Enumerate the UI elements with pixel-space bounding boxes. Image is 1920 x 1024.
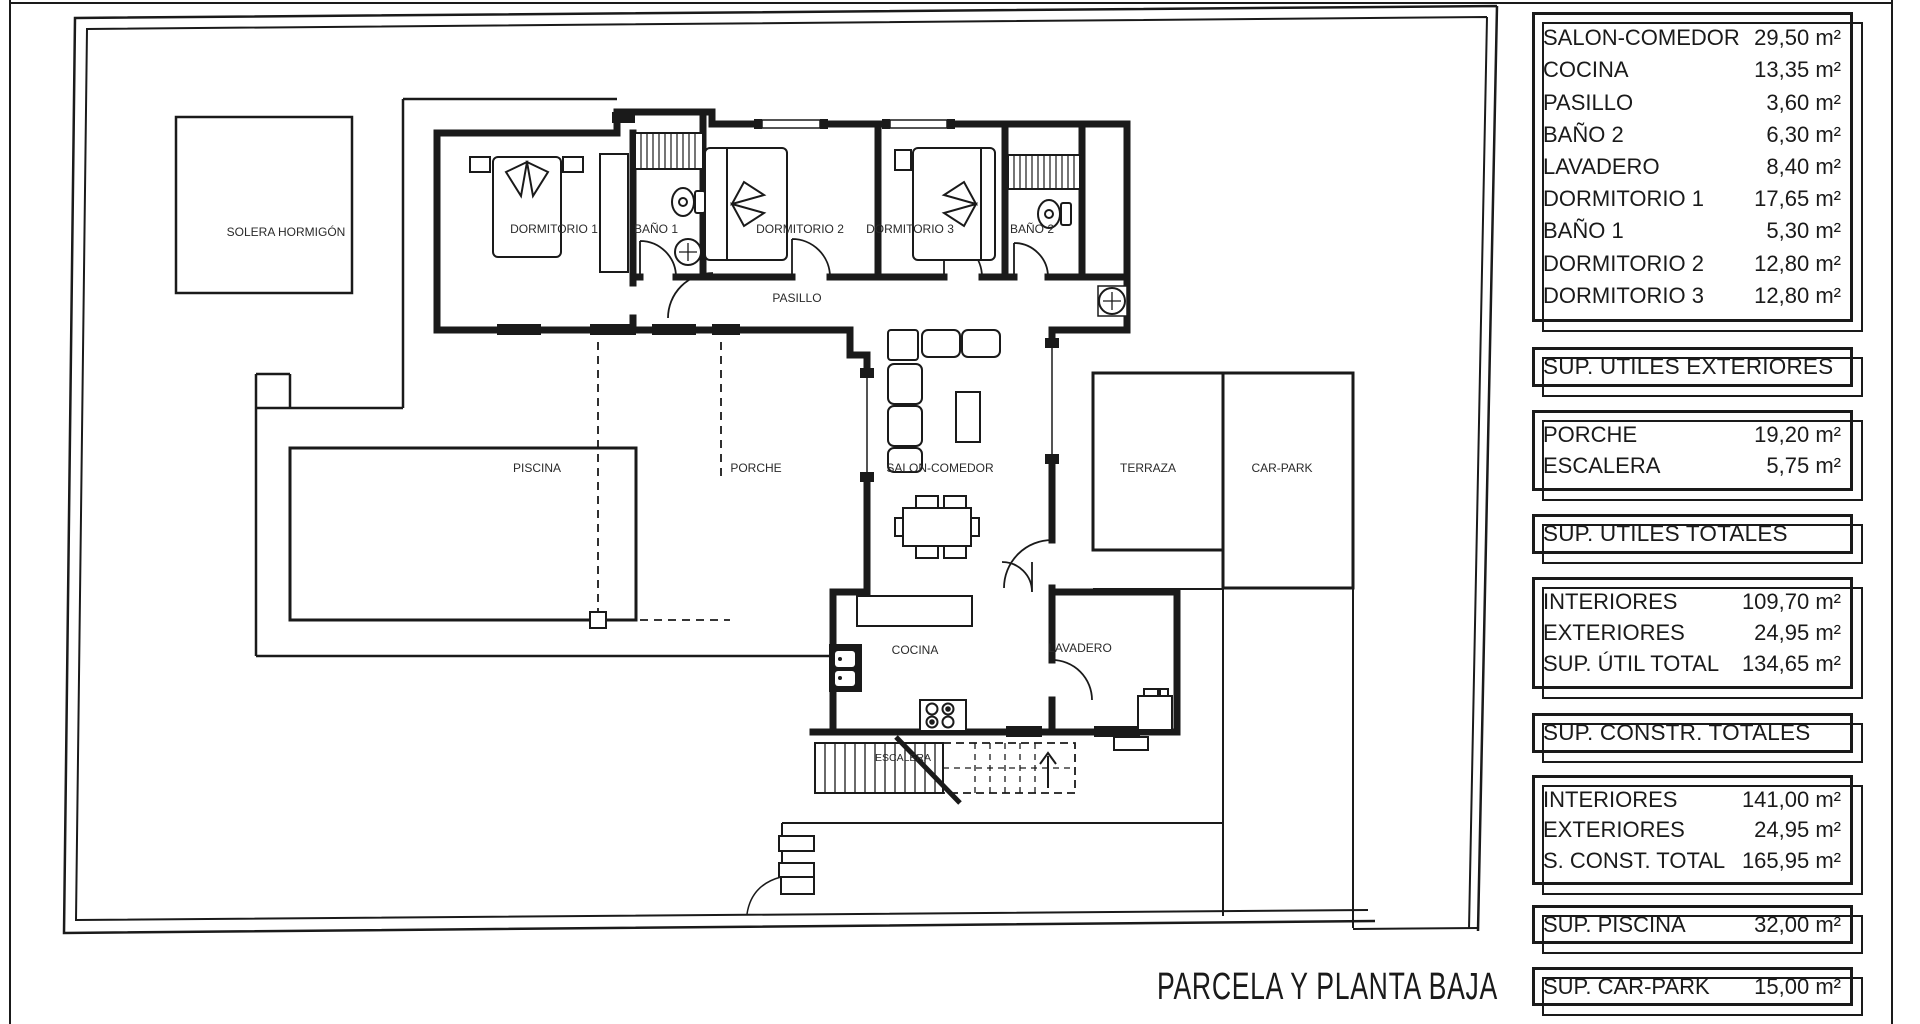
row-label: LAVADERO — [1543, 156, 1660, 178]
carpark-outline — [1223, 373, 1353, 588]
table-row: COCINA13,35 m² — [1543, 59, 1841, 81]
table-row: EXTERIORES24,95 m² — [1543, 819, 1841, 841]
label-bano2: BAÑO 2 — [1010, 222, 1054, 236]
panel-header-sup-utiles-exteriores: SUP. UTILES EXTERIORES — [1532, 347, 1853, 387]
row-label: EXTERIORES — [1543, 819, 1685, 841]
washing-machine — [1138, 689, 1172, 730]
row-value: 6,30 m² — [1766, 124, 1841, 146]
table-row: PASILLO3,60 m² — [1543, 92, 1841, 114]
row-label: INTERIORES — [1543, 789, 1677, 811]
kitchen-sink-unit — [829, 644, 862, 692]
panel-utiles-totales-table: INTERIORES109,70 m² EXTERIORES24,95 m² S… — [1532, 577, 1853, 689]
label-dormitorio1: DORMITORIO 1 — [510, 222, 598, 236]
row-label: BAÑO 2 — [1543, 124, 1624, 146]
row-value: 19,20 m² — [1754, 424, 1841, 446]
sink-bano1 — [675, 239, 701, 265]
plan-title: PARCELA Y PLANTA BAJA — [1157, 966, 1498, 1009]
row-label: INTERIORES — [1543, 591, 1677, 613]
panel-header-sup-constr-totales: SUP. CONSTR. TOTALES — [1532, 713, 1853, 753]
table-row: INTERIORES141,00 m² — [1543, 789, 1841, 811]
panel-header-text: SUP. CONSTR. TOTALES — [1543, 722, 1841, 745]
drawing-sheet: SOLERA HORMIGÓN DORMITORIO 1 BAÑO 1 DORM… — [0, 0, 1920, 1024]
shower-hatch-bano1 — [635, 133, 703, 169]
table-row: SUP. PISCINA32,00 m² — [1543, 914, 1841, 936]
row-value: 29,50 m² — [1754, 27, 1841, 49]
label-bano1: BAÑO 1 — [634, 222, 678, 236]
row-value: 109,70 m² — [1742, 591, 1841, 613]
bed-dormitorio1 — [470, 157, 583, 257]
panel-interior-areas-table: SALON-COMEDOR29,50 m² COCINA13,35 m² PAS… — [1532, 12, 1853, 322]
panel-sup-carpark: SUP. CAR-PARK15,00 m² — [1532, 967, 1853, 1006]
row-label: BAÑO 1 — [1543, 220, 1624, 242]
table-row: ESCALERA5,75 m² — [1543, 455, 1841, 477]
label-carpark: CAR-PARK — [1251, 461, 1312, 475]
table-row: S. CONST. TOTAL165,95 m² — [1543, 850, 1841, 872]
bed-dormitorio2 — [705, 148, 787, 260]
row-value: 12,80 m² — [1754, 285, 1841, 307]
kitchen-counter — [857, 596, 972, 626]
row-label: SUP. PISCINA — [1543, 914, 1686, 936]
panel-header-sup-utiles-totales: SUP. UTILES TOTALES — [1532, 514, 1853, 554]
label-escalera: ESCALERA — [875, 752, 931, 764]
row-label: EXTERIORES — [1543, 622, 1685, 644]
porch-edges — [598, 342, 730, 620]
label-piscina: PISCINA — [513, 461, 561, 475]
row-value: 24,95 m² — [1754, 819, 1841, 841]
table-row: INTERIORES109,70 m² — [1543, 591, 1841, 613]
label-salon: SALON-COMEDOR — [886, 461, 994, 475]
panel-exterior-areas-table: PORCHE19,20 m² ESCALERA5,75 m² — [1532, 410, 1853, 491]
row-value: 5,75 m² — [1766, 455, 1841, 477]
porch-column — [590, 612, 606, 628]
room-labels: SOLERA HORMIGÓN DORMITORIO 1 BAÑO 1 DORM… — [227, 222, 1313, 764]
dining-table — [895, 496, 979, 558]
label-dormitorio3: DORMITORIO 3 — [866, 222, 954, 236]
stairs-escalera — [815, 737, 1075, 803]
row-label: S. CONST. TOTAL — [1543, 850, 1725, 872]
row-label: PASILLO — [1543, 92, 1633, 114]
row-label: PORCHE — [1543, 424, 1637, 446]
row-value: 12,80 m² — [1754, 253, 1841, 275]
solera-hormigon-area — [176, 117, 352, 293]
table-row: BAÑO 26,30 m² — [1543, 124, 1841, 146]
table-row: SUP. ÚTIL TOTAL134,65 m² — [1543, 653, 1841, 675]
swimming-pool — [290, 448, 636, 620]
label-cocina: COCINA — [892, 643, 939, 657]
entry-steps — [747, 836, 814, 914]
row-value: 165,95 m² — [1742, 850, 1841, 872]
label-solera: SOLERA HORMIGÓN — [227, 224, 346, 239]
row-label: DORMITORIO 3 — [1543, 285, 1704, 307]
row-value: 5,30 m² — [1766, 220, 1841, 242]
row-value: 8,40 m² — [1766, 156, 1841, 178]
header-label: SUP. UTILES TOTALES — [1543, 523, 1788, 546]
row-label: SUP. CAR-PARK — [1543, 976, 1710, 998]
header-label: SUP. UTILES EXTERIORES — [1543, 356, 1833, 379]
label-dormitorio2: DORMITORIO 2 — [756, 222, 844, 236]
row-value: 13,35 m² — [1754, 59, 1841, 81]
table-row: BAÑO 15,30 m² — [1543, 220, 1841, 242]
row-label: SUP. ÚTIL TOTAL — [1543, 653, 1719, 675]
row-label: ESCALERA — [1543, 455, 1660, 477]
row-label: DORMITORIO 1 — [1543, 188, 1704, 210]
bed-dormitorio3 — [895, 148, 995, 260]
label-terraza: TERRAZA — [1120, 461, 1176, 475]
row-value: 32,00 m² — [1754, 914, 1841, 936]
table-row: DORMITORIO 312,80 m² — [1543, 285, 1841, 307]
row-value: 141,00 m² — [1742, 789, 1841, 811]
shower-hatch-bano2 — [1008, 155, 1080, 189]
lavadero-step — [1114, 737, 1148, 750]
stove — [920, 700, 966, 731]
table-row: SUP. CAR-PARK15,00 m² — [1543, 976, 1841, 998]
row-label: SALON-COMEDOR — [1543, 27, 1740, 49]
table-row: LAVADERO8,40 m² — [1543, 156, 1841, 178]
wardrobe-dormitorio1 — [600, 154, 628, 272]
row-value: 3,60 m² — [1766, 92, 1841, 114]
sink-corridor-niche — [1098, 286, 1127, 316]
row-value: 134,65 m² — [1742, 653, 1841, 675]
table-row: DORMITORIO 117,65 m² — [1543, 188, 1841, 210]
table-row: DORMITORIO 212,80 m² — [1543, 253, 1841, 275]
panel-constr-totales-table: INTERIORES141,00 m² EXTERIORES24,95 m² S… — [1532, 775, 1853, 885]
row-label: COCINA — [1543, 59, 1629, 81]
panel-header-text: SUP. UTILES TOTALES — [1543, 523, 1841, 546]
sofa-set — [888, 330, 1000, 472]
row-label: DORMITORIO 2 — [1543, 253, 1704, 275]
panel-sup-piscina: SUP. PISCINA32,00 m² — [1532, 905, 1853, 944]
toilet-bano1 — [672, 188, 705, 216]
label-lavadero: LAVADERO — [1048, 641, 1112, 655]
panel-header-text: SUP. UTILES EXTERIORES — [1543, 356, 1841, 379]
row-value: 24,95 m² — [1754, 622, 1841, 644]
label-porche: PORCHE — [730, 461, 781, 475]
row-value: 17,65 m² — [1754, 188, 1841, 210]
table-row: SALON-COMEDOR29,50 m² — [1543, 27, 1841, 49]
label-pasillo: PASILLO — [772, 291, 821, 305]
row-value: 15,00 m² — [1754, 976, 1841, 998]
table-row: EXTERIORES24,95 m² — [1543, 622, 1841, 644]
table-row: PORCHE19,20 m² — [1543, 424, 1841, 446]
header-label: SUP. CONSTR. TOTALES — [1543, 722, 1810, 745]
